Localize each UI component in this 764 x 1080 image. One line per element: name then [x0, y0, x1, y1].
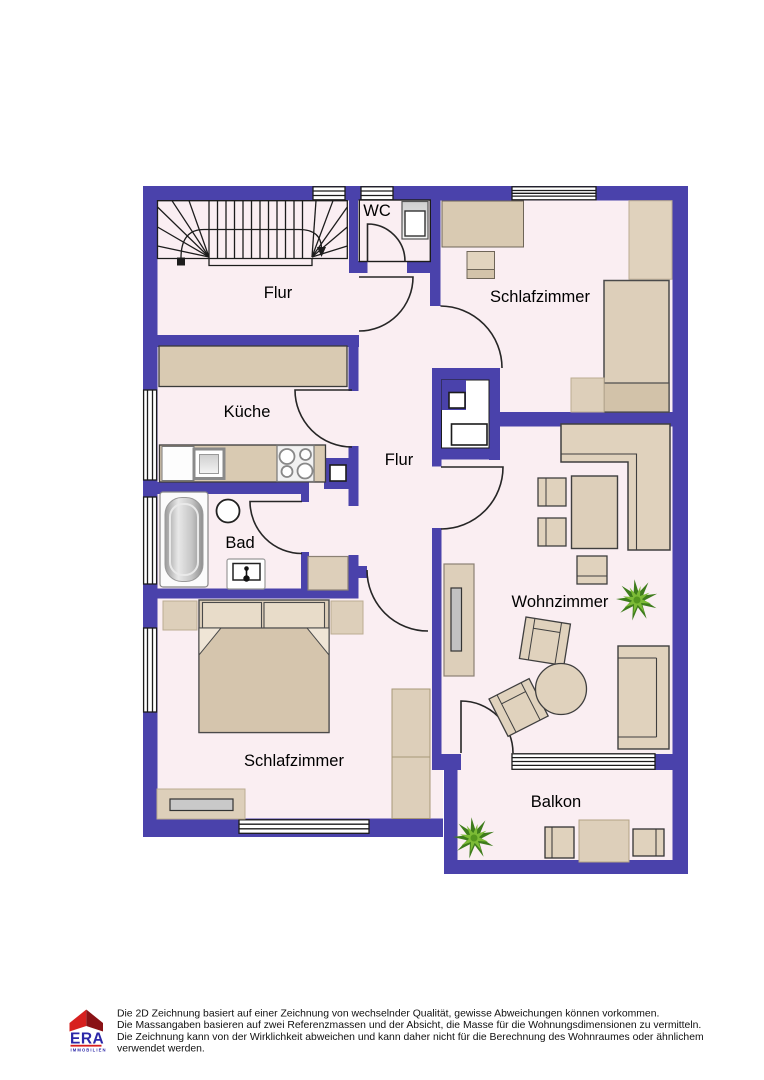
- svg-text:Die Massangaben basieren auf z: Die Massangaben basieren auf zwei Refere…: [117, 1020, 701, 1031]
- svg-text:Schlafzimmer: Schlafzimmer: [490, 288, 590, 306]
- svg-text:Balkon: Balkon: [531, 793, 581, 811]
- svg-text:Wohnzimmer: Wohnzimmer: [512, 593, 609, 611]
- svg-text:Küche: Küche: [224, 403, 271, 421]
- svg-text:verwendet werden.: verwendet werden.: [117, 1044, 205, 1055]
- svg-text:Flur: Flur: [385, 451, 414, 469]
- svg-text:Bad: Bad: [225, 534, 254, 552]
- svg-text:Flur: Flur: [264, 284, 293, 302]
- svg-text:IMMOBILIEN: IMMOBILIEN: [71, 1048, 107, 1053]
- svg-text:WC: WC: [363, 202, 391, 220]
- svg-text:Die 2D Zeichnung basiert auf e: Die 2D Zeichnung basiert auf einer Zeich…: [117, 1009, 659, 1020]
- svg-text:Schlafzimmer: Schlafzimmer: [244, 752, 344, 770]
- svg-text:Die Zeichnung kann von der Wir: Die Zeichnung kann von der Wirklichkeit …: [117, 1032, 704, 1043]
